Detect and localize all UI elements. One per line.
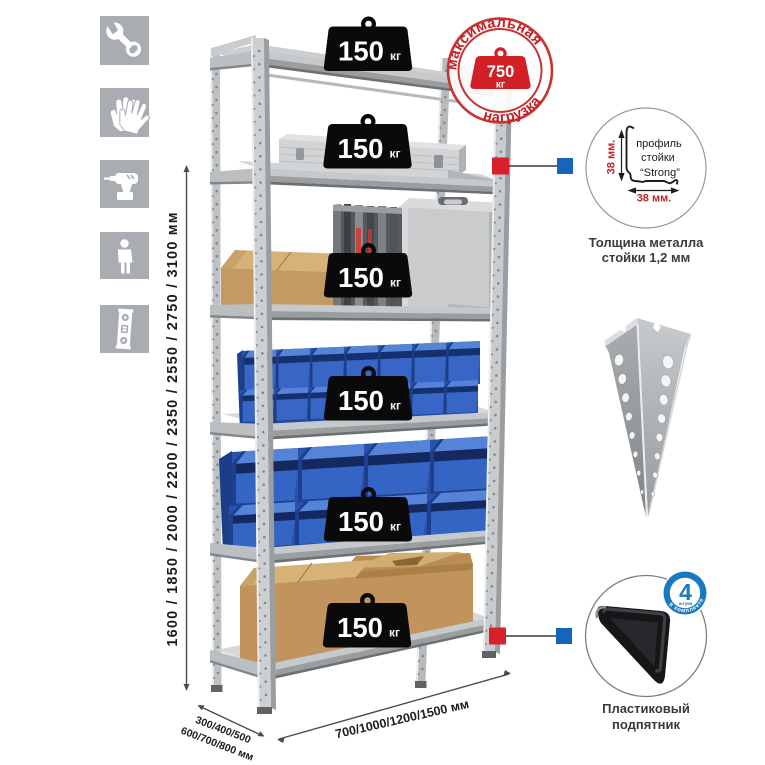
svg-text:кг: кг	[390, 147, 401, 161]
svg-text:Толщина металла: Толщина металла	[589, 235, 704, 250]
svg-text:38 мм.: 38 мм.	[637, 193, 672, 205]
svg-text:кг: кг	[390, 276, 401, 290]
svg-text:кг: кг	[496, 80, 505, 91]
svg-text:150: 150	[338, 385, 384, 416]
svg-text:150: 150	[338, 506, 384, 537]
svg-text:кг: кг	[389, 626, 400, 640]
svg-text:150: 150	[338, 262, 384, 293]
svg-text:стойки: стойки	[641, 152, 675, 164]
svg-text:150: 150	[338, 133, 384, 164]
svg-text:штуки: штуки	[679, 601, 693, 606]
svg-text:38 мм.: 38 мм.	[606, 140, 618, 175]
svg-text:стойки 1,2 мм: стойки 1,2 мм	[602, 250, 690, 265]
svg-text:профиль: профиль	[636, 138, 682, 150]
svg-text:кг: кг	[390, 520, 401, 534]
svg-text:150: 150	[338, 36, 384, 67]
svg-text:750: 750	[487, 63, 515, 81]
svg-text:Пластиковый: Пластиковый	[602, 701, 690, 716]
svg-text:кг: кг	[390, 399, 401, 413]
svg-text:150: 150	[337, 612, 383, 643]
svg-text:подпятник: подпятник	[612, 717, 681, 732]
svg-text:“Strong”: “Strong”	[640, 167, 680, 179]
svg-text:кг: кг	[390, 49, 401, 63]
svg-text:1600 / 1850 / 2000 / 2200 / 23: 1600 / 1850 / 2000 / 2200 / 2350 / 2550 …	[165, 211, 181, 646]
